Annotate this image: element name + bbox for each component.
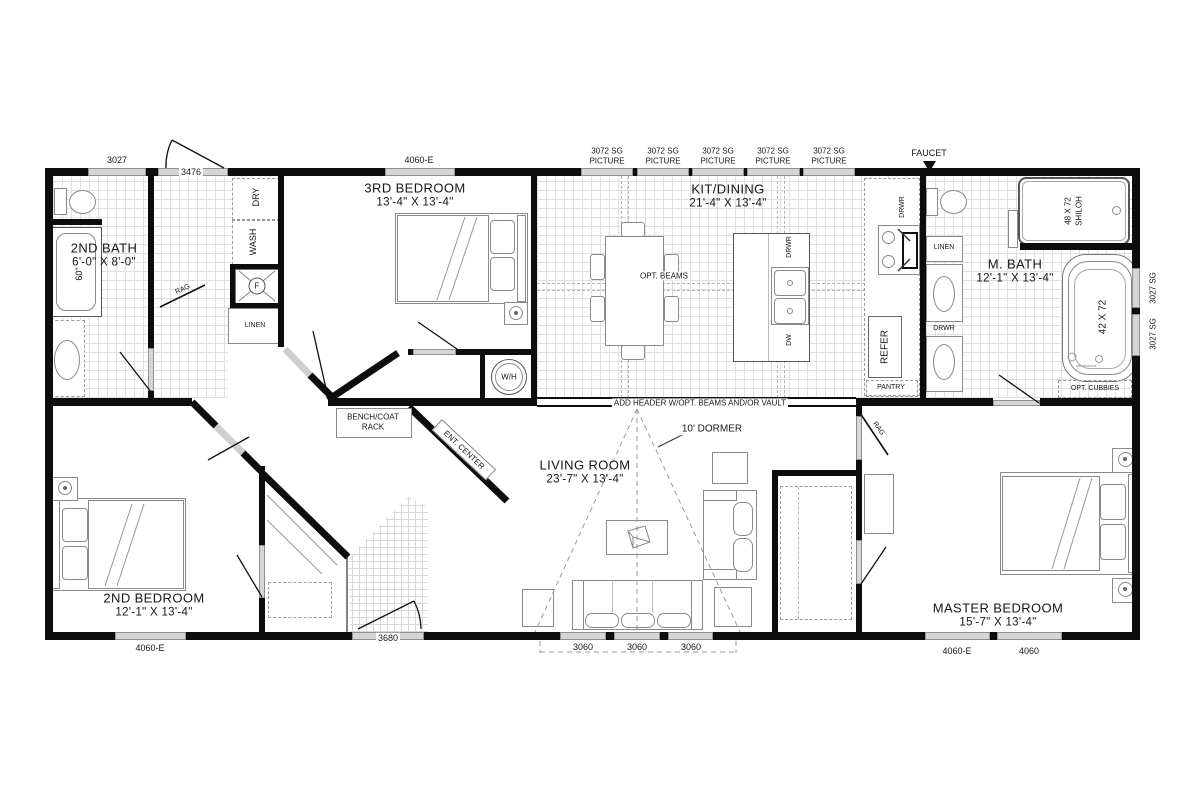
mid-wall-center — [328, 398, 533, 406]
pillow — [62, 546, 88, 580]
window-3027sg-2 — [1132, 314, 1140, 356]
window-3027sg-1 — [1132, 268, 1140, 308]
window-label-4060e: 4060-E — [404, 155, 433, 165]
doorgap-bed3-closet — [413, 349, 456, 355]
window-3060-3 — [668, 632, 713, 640]
dormer-leader — [658, 433, 686, 447]
wall-bath2-hall-stub — [148, 391, 154, 398]
window-picture-5 — [803, 168, 855, 176]
sofa-arm — [572, 580, 584, 630]
toilet-bowl — [69, 190, 96, 214]
window-label-picture: PICTURE — [589, 156, 624, 165]
closet-shelf — [268, 582, 332, 618]
sofa-divider — [612, 582, 613, 612]
wall-bath2-hall — [148, 176, 154, 348]
furnace-wall-bottom — [230, 303, 282, 308]
window-label-3060: 3060 — [627, 642, 647, 652]
toilet-tank — [54, 188, 67, 215]
window-picture-2 — [637, 168, 689, 176]
window-picture-3 — [692, 168, 744, 176]
doorgap-bed2-closet — [259, 545, 265, 598]
toilet-tank — [926, 188, 938, 216]
lamp-dot — [1123, 587, 1127, 591]
window-label-picture: PICTURE — [645, 156, 680, 165]
toilet-bowl — [940, 190, 967, 214]
lamp-dot — [514, 311, 518, 315]
sink — [933, 276, 955, 312]
window-picture-1 — [581, 168, 633, 176]
loveseat-arm — [703, 490, 737, 501]
ent-center-label: ENT. CENTER — [432, 419, 497, 481]
furnace-wall-top — [230, 264, 282, 269]
opt-cubbies-label: OPT. CUBBIES — [1071, 385, 1119, 393]
floor-patch — [228, 344, 284, 398]
side-table — [712, 452, 748, 484]
closet-rod — [780, 486, 852, 620]
wall-kit-left — [531, 176, 537, 406]
master-wall-stub1 — [856, 406, 862, 416]
window-label-4060e: 4060-E — [135, 643, 164, 653]
pillow — [1100, 524, 1126, 560]
room-dims-bedroom2: 12'-1" X 13'-4" — [115, 606, 192, 619]
window-4060e-master — [925, 632, 990, 640]
loveseat-arm — [703, 569, 737, 580]
bedroom2-wall-lower — [259, 598, 265, 632]
opt-beams-label: OPT. BEAMS — [638, 271, 690, 280]
doorgap-bath2 — [148, 348, 154, 391]
dining-chair — [621, 345, 645, 360]
bench-coat-label: RACK — [362, 422, 384, 431]
faucet-label: FAUCET — [911, 148, 947, 158]
rag-gap-master — [856, 416, 862, 460]
pillow — [1100, 484, 1126, 520]
room-label-mbath: M. BATH — [988, 258, 1043, 273]
room-label-bedroom2: 2ND BEDROOM — [103, 592, 204, 607]
window-4060e-bed3 — [385, 168, 455, 176]
dining-chair — [621, 222, 645, 237]
exterior-wall-right — [1132, 168, 1140, 640]
header-note-label: ADD HEADER W/OPT. BEAMS AND/OR VAULT — [612, 398, 788, 407]
drwr-label: DRWR — [899, 196, 907, 218]
window-4060e-bed2 — [115, 632, 186, 640]
room-label-bedroom3: 3RD BEDROOM — [364, 182, 465, 197]
bed-headboard — [517, 215, 526, 302]
window-label-picture: PICTURE — [700, 156, 735, 165]
lamp-dot — [1123, 457, 1127, 461]
sink — [54, 340, 80, 380]
doorgap-master-closet — [856, 540, 862, 584]
sink — [933, 344, 955, 380]
wall-wh-left — [480, 352, 485, 398]
dining-table — [605, 236, 664, 346]
master-wall-stub2 — [856, 584, 862, 632]
window-label-picture: 3072 SG — [591, 146, 623, 155]
bench-coat-label: BENCH/COAT — [347, 412, 399, 421]
pillow — [490, 220, 515, 254]
shower-wall-bottom — [1020, 243, 1132, 250]
refrigerator-label: REFER — [879, 330, 891, 364]
wall-bath2-stub — [48, 219, 102, 225]
linen-label: LINEN — [934, 244, 955, 252]
sofa-divider — [652, 582, 653, 612]
window-label-picture: 3072 SG — [647, 146, 679, 155]
sofa-cushion — [585, 613, 619, 628]
window-label-picture: PICTURE — [811, 156, 846, 165]
shower-model-label: SHILOH — [1074, 196, 1083, 226]
window-label-picture: PICTURE — [755, 156, 790, 165]
window-label-3027: 3027 — [107, 155, 127, 165]
dormer-label: 10' DORMER — [680, 423, 744, 435]
window-label-picture: 3072 SG — [813, 146, 845, 155]
closet-shelf-line — [798, 487, 799, 619]
window-3060-2 — [614, 632, 660, 640]
drwr-label: DRWR — [786, 236, 794, 258]
tub-size-label: 60" — [74, 267, 84, 280]
window-label-3060: 3060 — [573, 642, 593, 652]
furnace-wall-left — [230, 264, 235, 308]
mbath-wall-bottom-left — [926, 398, 993, 406]
room-dims-living: 23'-7" X 13'-4" — [546, 473, 623, 486]
shower-drain — [1112, 206, 1121, 215]
stove-frame — [902, 232, 918, 269]
room-dims-bedroom3: 13'-4" X 13'-4" — [376, 196, 453, 209]
burner — [882, 255, 895, 268]
room-dims-mbath: 12'-1" X 13'-4" — [976, 272, 1053, 285]
rag-label: RAG — [870, 420, 885, 437]
floorplan-canvas: 3027 3476 4060-E 3072 SG PICTURE 3072 SG… — [0, 0, 1200, 800]
room-label-living: LIVING ROOM — [539, 459, 630, 474]
burner — [882, 231, 895, 244]
window-label-4060e: 4060-E — [942, 646, 971, 656]
room-dims-master: 15'-7" X 13'-4" — [959, 616, 1036, 629]
window-label-picture: 3072 SG — [702, 146, 734, 155]
window-label-3027sg: 3027 SG — [1148, 318, 1157, 350]
opt-beam-line — [537, 290, 920, 291]
window-label-3060: 3060 — [681, 642, 701, 652]
tub-size-label: 42 X 72 — [1097, 300, 1109, 334]
side-table — [522, 589, 554, 627]
room-dims-kitdining: 21'-4" X 13'-4" — [689, 197, 766, 210]
loveseat-cushion — [733, 502, 753, 536]
window-4060-master — [997, 632, 1062, 640]
side-table — [714, 587, 752, 627]
dining-chair — [590, 296, 605, 322]
door-label-3476: 3476 — [179, 167, 203, 177]
tile-floor-entry — [345, 497, 428, 632]
wall-hall-bedroom3 — [278, 176, 284, 347]
bed-mattress — [397, 215, 489, 302]
closet-wall-left — [772, 470, 778, 632]
dresser — [864, 474, 894, 534]
sofa-cushion — [657, 613, 691, 628]
pillow — [62, 508, 88, 542]
window-3060-1 — [560, 632, 606, 640]
doorgap-mbath — [993, 400, 1040, 406]
mid-wall-left — [45, 398, 192, 406]
door-label-3680: 3680 — [376, 633, 400, 643]
dining-chair — [590, 254, 605, 280]
shower-size-label: 48 X 72 — [1063, 197, 1072, 225]
pantry-label: PANTRY — [877, 384, 905, 392]
drwr-label: DRWR — [933, 325, 955, 333]
island-divider — [768, 234, 769, 361]
window-3027 — [88, 168, 146, 176]
dining-chair — [664, 296, 679, 322]
room-label-master: MASTER BEDROOM — [933, 602, 1064, 617]
mid-wall-right — [856, 398, 926, 406]
bed-mattress — [1002, 476, 1100, 571]
master-wall-mid — [856, 460, 862, 540]
loveseat-cushion — [733, 538, 753, 572]
mbath-wall-bottom-right — [1040, 398, 1132, 406]
pillow — [490, 257, 515, 291]
sink-drain — [787, 308, 793, 314]
window-picture-4 — [747, 168, 800, 176]
lamp-dot — [63, 486, 67, 490]
closet-wall-top — [772, 470, 862, 476]
sofa-arm — [691, 580, 703, 630]
bed-mattress — [88, 500, 184, 589]
sofa-cushion — [621, 613, 655, 628]
bedroom2-wall-upper — [259, 466, 265, 545]
room-label-kitdining: KIT/DINING — [691, 183, 764, 198]
linen-label: LINEN — [245, 322, 266, 330]
dryer-label: DRY — [251, 188, 261, 207]
wall-kitchen-mbath — [920, 176, 926, 406]
furnace-label: F — [255, 281, 260, 290]
window-label-picture: 3072 SG — [757, 146, 789, 155]
sink-drain — [787, 280, 793, 286]
dw-label: DW — [786, 334, 794, 346]
room-label-bath2: 2ND BATH — [71, 242, 138, 257]
opt-beam-line — [537, 283, 920, 284]
washer-label: WASH — [248, 229, 258, 256]
window-label-3027sg: 3027 SG — [1148, 272, 1157, 304]
water-heater-label: W/H — [501, 372, 517, 381]
window-label-4060: 4060 — [1019, 646, 1039, 656]
shower-seat — [1008, 210, 1018, 248]
coffee-table — [606, 520, 668, 555]
